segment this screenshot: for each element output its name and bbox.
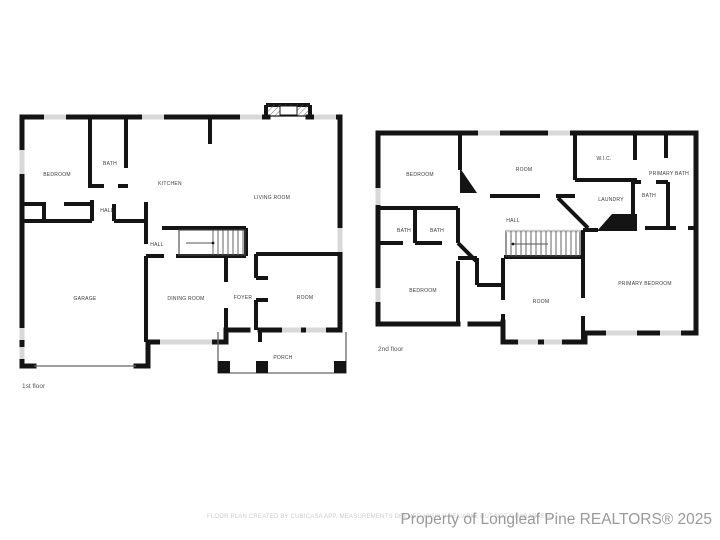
room-label-primary-bedroom: PRIMARY BEDROOM bbox=[618, 281, 672, 287]
floor-plan-page: BEDROOM BATH KITCHEN LIVING ROOM HALL HA… bbox=[0, 0, 720, 540]
second-floor-label: 2nd floor bbox=[378, 346, 404, 353]
stairs-first-floor bbox=[179, 230, 245, 255]
room-label-dining-room: DINING ROOM bbox=[167, 296, 204, 302]
room-label-room-bottom: ROOM bbox=[533, 299, 550, 305]
first-floor-plan: BEDROOM BATH KITCHEN LIVING ROOM HALL HA… bbox=[22, 104, 346, 390]
second-floor-interior-walls bbox=[378, 133, 696, 342]
first-floor-label: 1st floor bbox=[22, 383, 46, 390]
room-label-bedroom-tl: BEDROOM bbox=[406, 172, 434, 178]
room-label-primary-bath: PRIMARY BATH bbox=[649, 171, 689, 177]
room-label-laundry: LAUNDRY bbox=[598, 197, 624, 203]
second-floor-windows bbox=[378, 133, 681, 342]
room-label-room: ROOM bbox=[297, 295, 314, 301]
room-label-bath-left-1: BATH bbox=[397, 228, 411, 234]
stairs-second-floor bbox=[506, 231, 580, 256]
wall-wedge-laundry bbox=[597, 214, 637, 231]
room-label-bath: BATH bbox=[103, 161, 117, 167]
porch-pillar bbox=[218, 361, 230, 373]
room-label-foyer: FOYER bbox=[234, 295, 253, 301]
second-floor-plan: BEDROOM ROOM W.I.C. PRIMARY BATH LAUNDRY… bbox=[378, 133, 696, 353]
room-label-bath-small: BATH bbox=[642, 193, 656, 199]
room-label-hall-1: HALL bbox=[100, 208, 114, 214]
porch-pillar bbox=[256, 361, 268, 373]
floor-plan-canvas: BEDROOM BATH KITCHEN LIVING ROOM HALL HA… bbox=[0, 0, 720, 540]
second-floor-outer-walls bbox=[378, 133, 696, 342]
room-label-bedroom-bl: BEDROOM bbox=[409, 288, 437, 294]
room-label-living-room: LIVING ROOM bbox=[254, 195, 290, 201]
room-label-hall: HALL bbox=[506, 218, 520, 224]
room-label-hall-2: HALL bbox=[150, 242, 164, 248]
wall-wedge-hall bbox=[460, 168, 477, 193]
first-floor-windows bbox=[22, 117, 340, 359]
porch-pillar bbox=[334, 361, 346, 373]
room-label-porch: PORCH bbox=[273, 355, 292, 361]
realtor-watermark: Property of Longleaf Pine REALTORS® 2025 bbox=[400, 511, 712, 529]
room-label-wic: W.I.C. bbox=[596, 156, 611, 162]
fireplace bbox=[266, 104, 310, 117]
room-label-bedroom: BEDROOM bbox=[43, 172, 71, 178]
room-label-garage: GARAGE bbox=[74, 296, 97, 302]
room-label-kitchen: KITCHEN bbox=[158, 181, 182, 187]
room-label-bath-left-2: BATH bbox=[430, 228, 444, 234]
room-label-room-top: ROOM bbox=[516, 167, 533, 173]
porch-outline bbox=[218, 332, 346, 373]
